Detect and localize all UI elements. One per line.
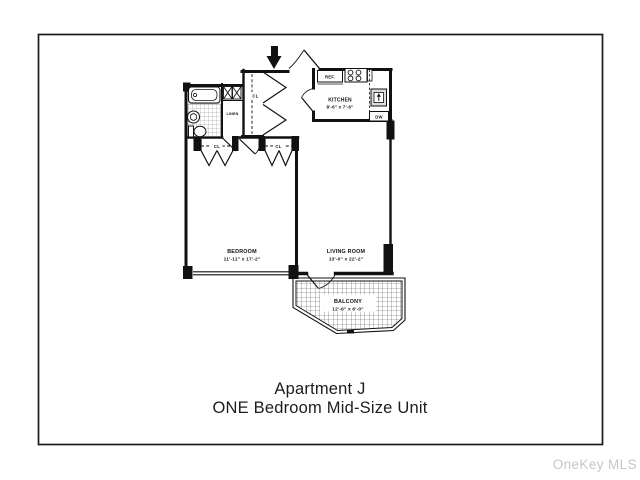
- kitchen-door-swing: [302, 89, 314, 98]
- linen-label: LINEN: [226, 112, 238, 116]
- balcony-post: [347, 330, 354, 334]
- living-room-label: LIVING ROOM: [327, 249, 366, 255]
- sink-icon: [188, 111, 200, 123]
- closet2-label: CL: [275, 144, 281, 149]
- post-bedroom-bottom-right: [289, 265, 299, 279]
- entry-arrow-icon: [267, 46, 282, 69]
- bedroom-door-leaf: [240, 139, 256, 154]
- entry-door-swing: [289, 50, 304, 69]
- vent-shaft-icon: [224, 87, 242, 100]
- balcony-dims: 12'-6" x 6'-0": [332, 307, 364, 313]
- refrigerator-box: REF.: [318, 71, 344, 85]
- entry-closet: CL: [249, 72, 286, 135]
- post-living-top-right: [387, 121, 395, 140]
- toilet-icon: [189, 126, 207, 137]
- watermark-text: OneKey MLS: [553, 457, 637, 472]
- bedroom: BEDROOM 11'-11" x 17'-2": [193, 249, 289, 275]
- post-closet-row-right: [292, 136, 300, 151]
- entry: [267, 46, 320, 69]
- bathtub-icon: [189, 87, 221, 103]
- dishwasher-box: DW: [370, 112, 389, 122]
- dishwasher-label: DW: [375, 115, 382, 120]
- caption: Apartment J ONE Bedroom Mid-Size Unit: [38, 380, 602, 417]
- closet-row: CL CL: [201, 139, 292, 166]
- floorplan-image: CL: [0, 0, 640, 480]
- living-room-dims: 13'-0" x 22'-2": [329, 257, 363, 263]
- bifold-door-icon: [263, 72, 286, 135]
- bedroom-window: [193, 272, 289, 275]
- kitchen-dims: 8'-6" x 7'-6": [326, 105, 353, 110]
- entry-closet-label: CL: [252, 94, 258, 99]
- post-closet2-left: [259, 136, 266, 151]
- bedroom-dims: 11'-11" x 17'-2": [224, 257, 261, 263]
- kitchen-sink-icon: [371, 89, 387, 106]
- entry-door-leaf: [304, 50, 320, 69]
- post-living-bottom-right: [384, 244, 394, 274]
- linen-closet: LINEN: [222, 87, 243, 117]
- post-closet-row-left: [194, 136, 201, 151]
- unit-subtitle: ONE Bedroom Mid-Size Unit: [38, 399, 602, 418]
- apartment-title: Apartment J: [38, 380, 602, 399]
- refrigerator-label: REF.: [325, 75, 335, 80]
- balcony-label: BALCONY: [334, 299, 362, 305]
- closet1-label: CL: [214, 144, 220, 149]
- post-bedroom-bottom-left: [183, 266, 193, 279]
- stove-icon: [345, 69, 372, 83]
- bedroom-label: BEDROOM: [227, 249, 257, 255]
- kitchen-label: KITCHEN: [328, 98, 352, 104]
- closet-2: CL: [265, 139, 292, 166]
- bifold-door-icon: [201, 151, 233, 166]
- balcony: BALCONY 12'-6" x 6'-0": [293, 278, 405, 334]
- bifold-door-icon: [265, 151, 292, 166]
- kitchen-door-leaf: [302, 98, 314, 112]
